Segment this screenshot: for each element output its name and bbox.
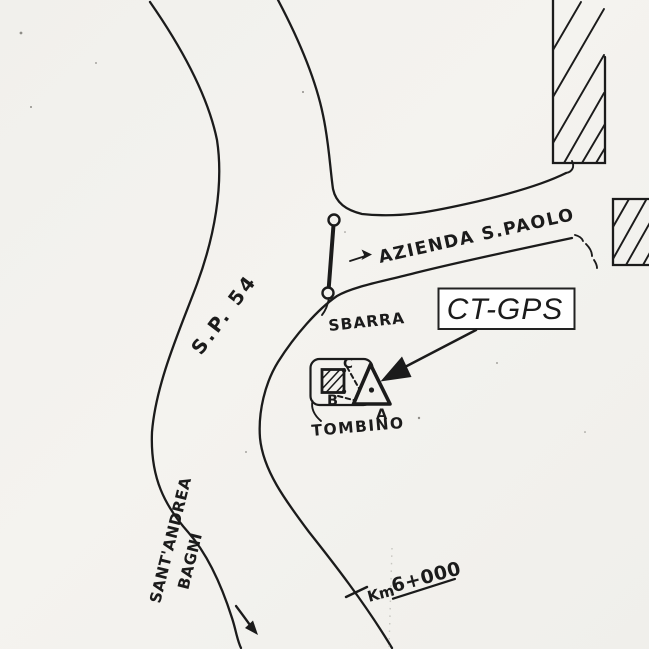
km-marker: Km 6+000 [346,557,464,605]
building-right-edge [613,199,649,265]
site-sketch-map: SBARRA AZIENDA S.PAOLO S.P. 54 C B A [0,0,649,649]
building-top-right-hatch [553,2,605,163]
manhole-hatched-square [322,368,346,393]
ct-gps-callout: CT-GPS [381,289,575,382]
barrier-label: SBARRA [328,309,406,335]
barrier-pivot-bottom [323,288,334,299]
point-b-label: B [327,393,338,409]
callout-label: CT-GPS [447,293,564,326]
km-value: 6+000 [389,557,464,597]
branch-direction-arrow [350,250,372,262]
branch-road-dashes [575,235,597,268]
survey-marker-triangle [354,365,391,405]
building-right-hatch [613,199,649,265]
main-road-right-edge-and-branch-top [278,0,566,215]
barrier-pivot-top [329,215,340,226]
survey-station-area: C B A [311,356,391,423]
barrier-bar [329,225,334,291]
callout-arrow-shaft [403,330,476,368]
building-top-right [553,0,605,163]
manhole-label: TOMBINO [311,414,406,440]
callout-arrowhead [381,357,412,382]
scanned-sketch-page: SBARRA AZIENDA S.PAOLO S.P. 54 C B A [0,0,649,649]
paper-specks [20,32,586,453]
destination-sign: SANT'ANDREA BAGNI [146,475,258,635]
point-c-label: C [343,356,353,372]
survey-marker-center-dot [369,387,374,392]
